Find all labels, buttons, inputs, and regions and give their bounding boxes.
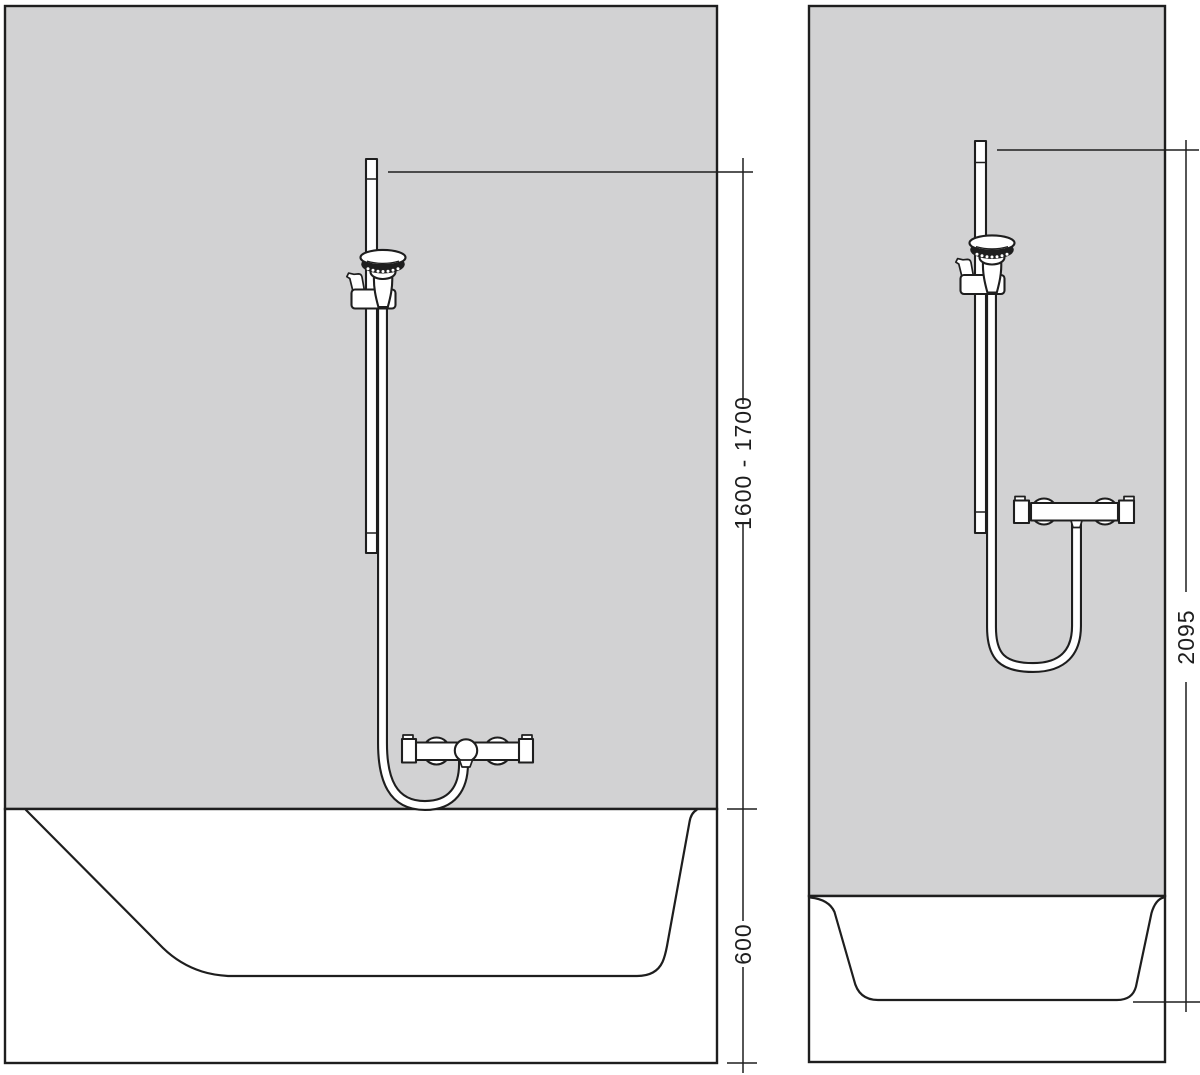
dim-label-tub-height: 600 <box>730 923 756 964</box>
installation-diagram: 1600 - 1700 600 <box>0 0 1200 1075</box>
mixer-outlet-side <box>1071 521 1082 528</box>
bathtub-body-front <box>5 809 717 1063</box>
front-view: 1600 - 1700 600 <box>5 6 757 1073</box>
bathtub-body-side <box>809 896 1165 1062</box>
mixer-outlet-front <box>455 739 477 761</box>
diagram-canvas: 1600 - 1700 600 <box>0 0 1200 1075</box>
wall-front <box>5 6 717 809</box>
slide-bar-front <box>366 159 377 553</box>
mixer-body-side <box>1031 503 1118 521</box>
dim-label-total-height: 2095 <box>1173 609 1199 664</box>
side-view: 2095 <box>809 6 1200 1062</box>
dim-label-bar-height: 1600 - 1700 <box>730 396 756 530</box>
slide-bar-side <box>975 141 986 533</box>
dimension-tub-height: 600 <box>727 809 757 1073</box>
